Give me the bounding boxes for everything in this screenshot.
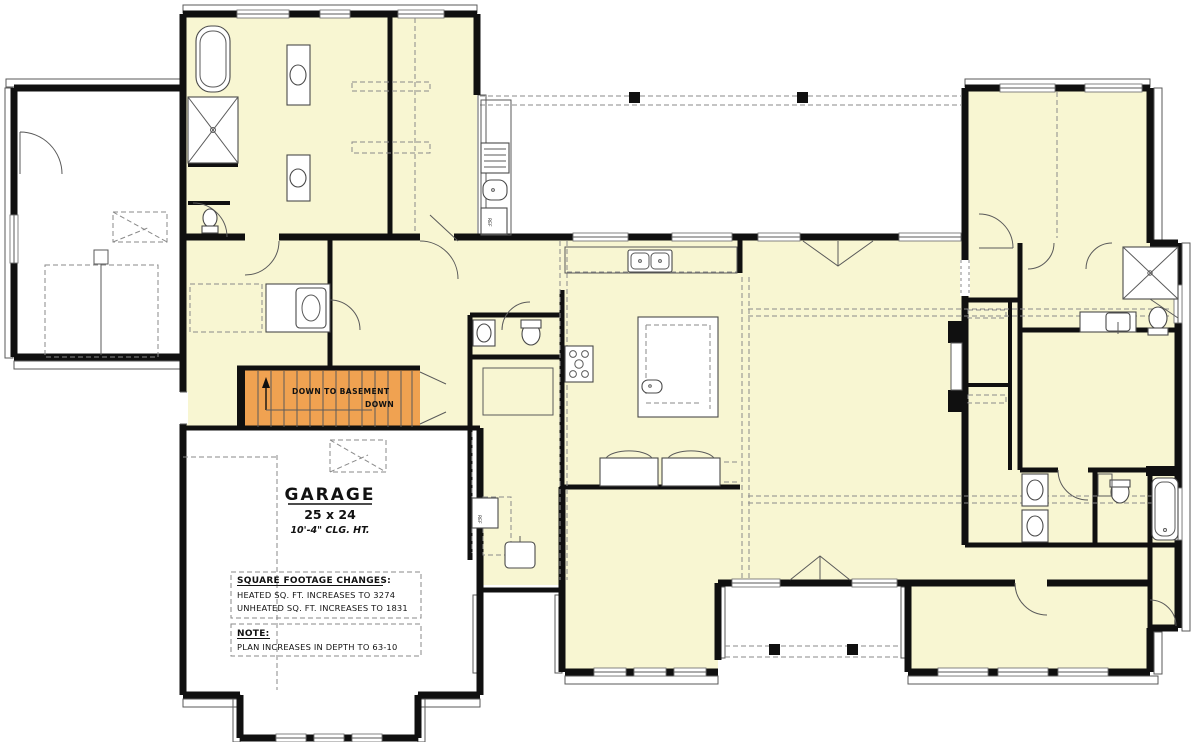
garage-ceiling-height: 10'-4" CLG. HT. [290,525,369,536]
range-icon [565,346,593,382]
powder-toilet-icon [521,320,541,345]
post-icon [94,250,108,264]
lower-band-area [480,430,965,585]
bath3-tub-icon [1152,478,1178,540]
sqft-note-line2: UNHEATED SQ. FT. INCREASES TO 1831 [237,603,408,613]
basement-stairs-area [237,370,420,428]
sqft-note-line1: HEATED SQ. FT. INCREASES TO 3274 [237,590,395,600]
scullery-ref-icon: REF [472,498,498,528]
outdoor-sink-icon [483,180,507,200]
outdoor-ref-label: REF [486,218,492,227]
rear-porch-column-icon [769,644,780,655]
general-note-heading: NOTE: [237,629,270,639]
garage-name: GARAGE [285,485,376,505]
fireplace-icon [948,321,965,343]
freestanding-tub-icon [196,26,230,92]
garage-dimensions: 25 x 24 [304,507,356,522]
rear-porch-column-icon [847,644,858,655]
kitchen-island-icon [638,317,718,417]
side-porch-area [480,590,562,675]
general-note-line1: PLAN INCREASES IN DEPTH TO 63-10 [237,642,398,652]
outdoor-ref-icon: REF [481,208,507,234]
master-shower-icon [188,97,238,163]
grill-icon [481,143,509,173]
master-vanity-bottom-icon [287,155,310,201]
floor-plan-drawing: REF [0,0,1200,742]
garage-bay-area [240,695,418,738]
garage-area [183,428,480,695]
sqft-note-heading: SQUARE FOOTAGE CHANGES: [237,576,391,586]
dining-area [562,487,718,672]
rear-porch-area [718,583,908,660]
stair-label: DOWN TO BASEMENT [292,387,390,396]
kitchen-sink-icon [628,250,672,272]
scullery-ref-label: REF [476,515,482,524]
bath2-toilet-icon [1148,307,1168,335]
floor-plan-page: REF [0,0,1200,742]
master-toilet-icon [202,209,218,233]
bath2-vanity-icon [1080,312,1136,334]
laundry-sink-icon [266,284,330,332]
master-vanity-top-icon [287,45,310,105]
porch-column-icon [629,92,640,103]
stair-direction-label: DOWN [365,400,394,409]
powder-sink-icon [473,320,495,346]
top-porch-area [477,95,965,237]
porch-column-icon [797,92,808,103]
prep-sink-icon [642,380,662,393]
